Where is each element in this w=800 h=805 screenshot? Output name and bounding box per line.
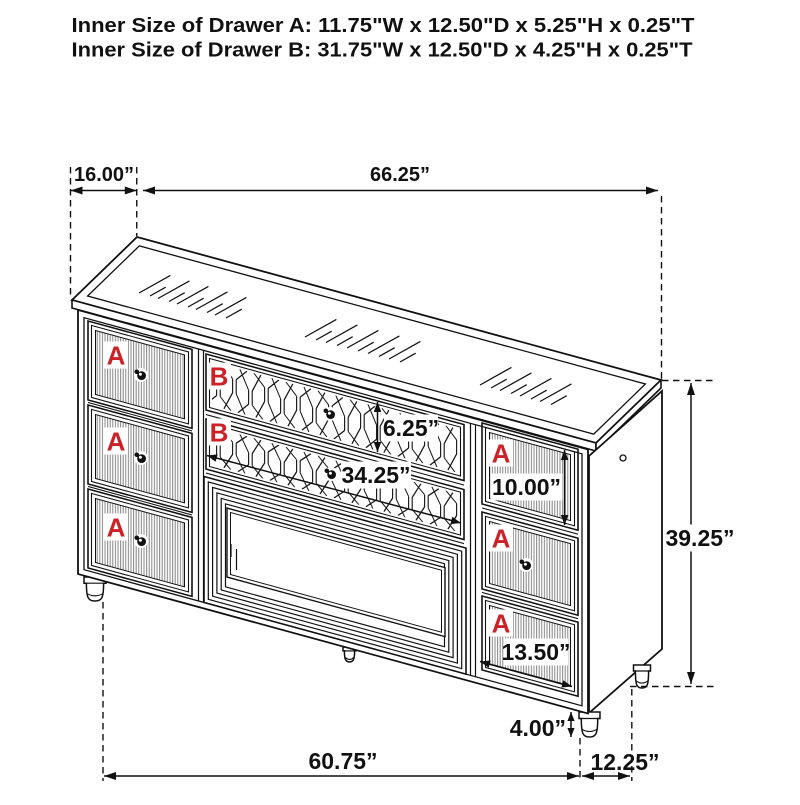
svg-text:A: A [107, 513, 126, 543]
svg-text:A: A [107, 427, 126, 457]
svg-text:34.25”: 34.25” [341, 462, 410, 488]
svg-text:A: A [492, 524, 511, 554]
svg-text:B: B [210, 362, 229, 392]
svg-text:Inner Size of Drawer B: 31.75": Inner Size of Drawer B: 31.75"W x 12.50"… [72, 40, 693, 62]
svg-text:10.00”: 10.00” [492, 474, 561, 500]
svg-text:Inner Size of Drawer A: 11.75": Inner Size of Drawer A: 11.75"W x 12.50"… [72, 15, 695, 37]
svg-text:12.25”: 12.25” [590, 749, 659, 775]
svg-text:39.25”: 39.25” [665, 525, 734, 551]
svg-text:6.25”: 6.25” [383, 415, 439, 441]
svg-text:B: B [210, 418, 229, 448]
svg-text:A: A [107, 341, 126, 371]
svg-text:16.00”: 16.00” [74, 164, 134, 186]
svg-text:13.50”: 13.50” [501, 639, 570, 665]
svg-text:4.00”: 4.00” [510, 715, 566, 741]
svg-text:66.25”: 66.25” [370, 164, 430, 186]
svg-text:A: A [492, 439, 511, 469]
svg-text:A: A [492, 609, 511, 639]
svg-text:60.75”: 60.75” [308, 748, 377, 774]
